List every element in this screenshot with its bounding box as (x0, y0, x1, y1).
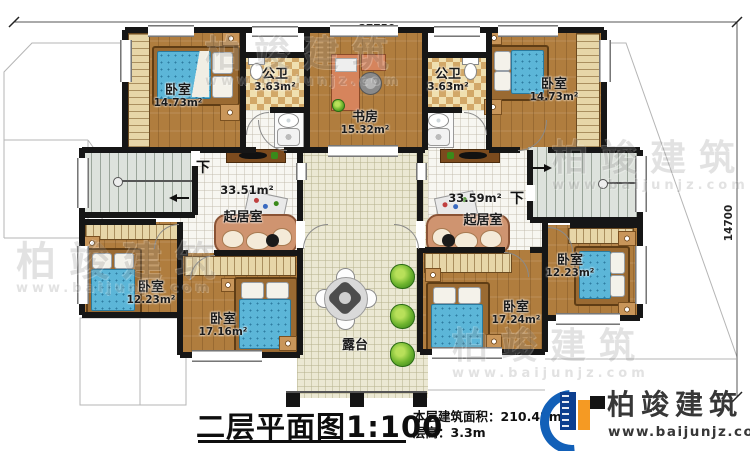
logo-icon (540, 384, 602, 446)
window (498, 25, 558, 37)
window (599, 40, 611, 82)
room-label-bedroom-bottom-right: 卧室 17.24m² (486, 301, 546, 326)
bed (426, 282, 490, 354)
window (252, 26, 298, 37)
room-label-bedroom-top-left: 卧室 14.73m² (138, 84, 218, 109)
dimension-label-right: 14700 (723, 198, 735, 248)
window (635, 156, 647, 212)
sink (428, 113, 449, 128)
room-label-living-left: 起居室 (211, 211, 275, 225)
down-arrow-head (169, 194, 177, 202)
room-label-bedroom-right: 卧室 12.23m² (540, 254, 600, 279)
plant (390, 342, 415, 367)
window (77, 158, 89, 208)
window (635, 246, 647, 304)
down-arrow (176, 197, 189, 199)
window (432, 347, 502, 359)
nightstand (618, 231, 636, 246)
stair-rail (606, 182, 636, 184)
nightstand (618, 302, 636, 317)
room-label-terrace: 露台 (325, 339, 385, 353)
shelf (361, 54, 386, 71)
room-area-living-right: 33.59m² (445, 193, 505, 204)
plant (390, 304, 415, 329)
window (416, 163, 427, 180)
window (330, 25, 398, 37)
logo-name: 柏竣建筑 (607, 390, 743, 420)
logo-website: www.baijunjz.com (608, 424, 750, 440)
stair-rail-knob (598, 179, 608, 189)
title-underline (198, 440, 406, 443)
plant (390, 264, 415, 289)
nightstand (220, 104, 240, 121)
room-label-bath-right: 公卫 3.63m² (420, 68, 476, 93)
stair-opening (526, 185, 535, 201)
room-label-living-right: 起居室 (451, 214, 515, 228)
dining-table-set (315, 268, 375, 328)
window (556, 313, 620, 325)
room-label-study: 书房 15.32m² (335, 111, 395, 136)
down-arrow-head (544, 164, 552, 172)
nightstand (222, 31, 240, 46)
tv-cabinet (440, 149, 500, 163)
tv-cabinet (226, 149, 286, 163)
stair-rail (120, 180, 192, 182)
nightstand (425, 268, 441, 282)
room-label-bedroom-left: 卧室 12.23m² (121, 281, 181, 306)
room-label-bath-left: 公卫 3.63m² (247, 68, 303, 93)
stairs-down-label-right: 下 (510, 188, 524, 208)
room-area-living-left: 33.51m² (217, 185, 277, 196)
desk-chair (359, 72, 382, 95)
room-label-bedroom-bottom-left: 卧室 17.16m² (193, 313, 253, 338)
window (434, 26, 480, 37)
nightstand (221, 278, 235, 292)
window (296, 163, 307, 180)
room-label-bedroom-top-right: 卧室 14.73m² (523, 78, 585, 103)
window (192, 350, 262, 362)
nightstand (484, 99, 502, 115)
window (77, 246, 89, 304)
nightstand (279, 336, 297, 351)
stairs-down-label-left: 下 (196, 157, 210, 177)
window (120, 40, 132, 82)
stair-rail-knob (113, 177, 123, 187)
terrace-door-window (328, 145, 398, 157)
washer (427, 128, 450, 146)
floor-plan-page: 27750 14700 (0, 0, 750, 451)
down-arrow (531, 167, 544, 169)
window (148, 25, 194, 37)
